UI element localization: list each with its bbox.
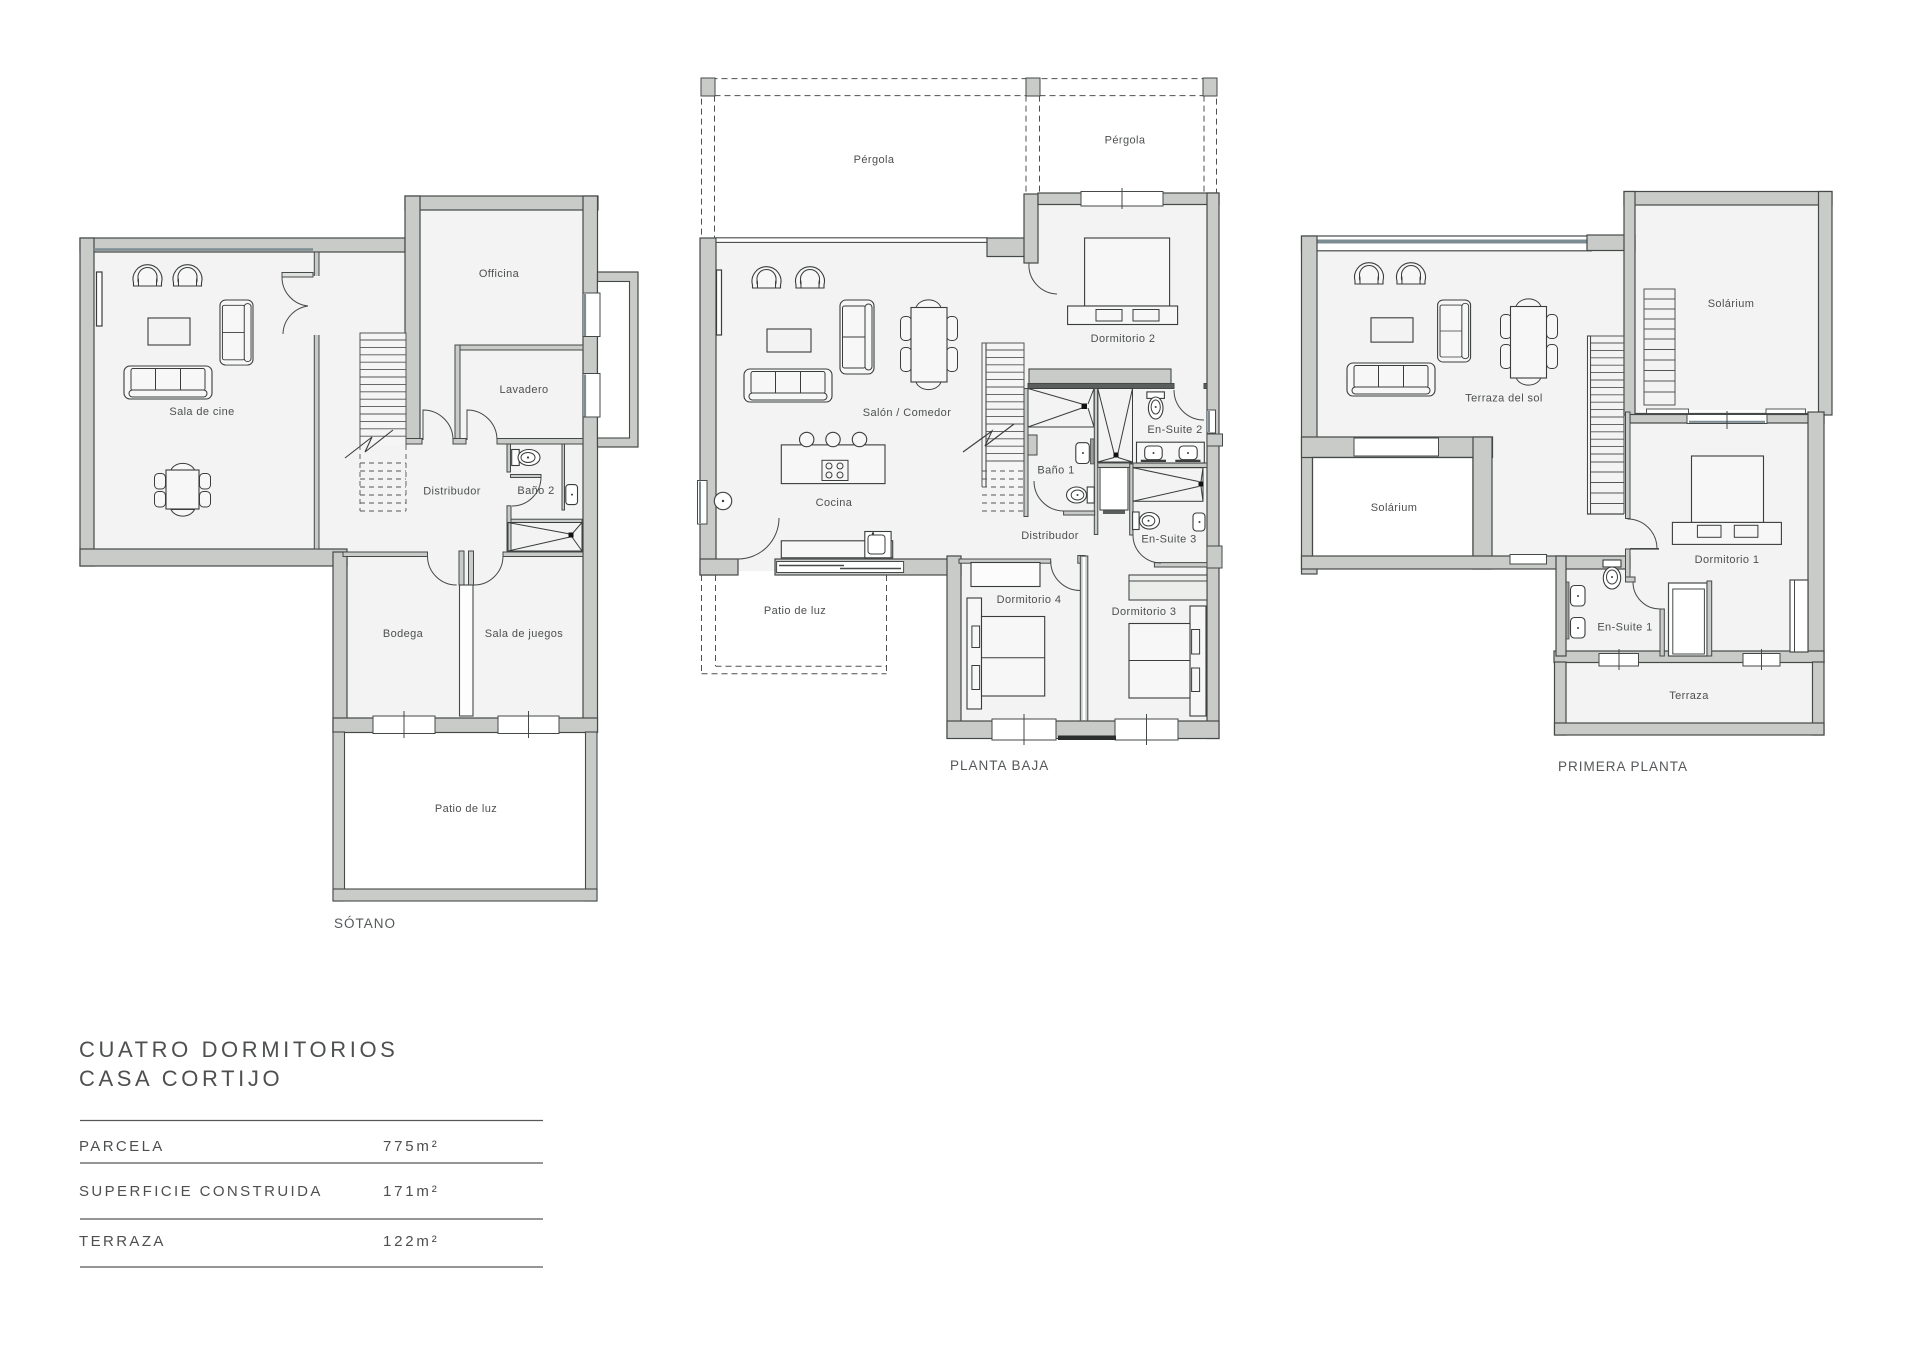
svg-text:PRIMERA PLANTA: PRIMERA PLANTA: [1558, 759, 1688, 774]
svg-text:Pérgola: Pérgola: [1105, 135, 1146, 147]
svg-text:Lavadero: Lavadero: [499, 384, 548, 396]
svg-text:Sala de juegos: Sala de juegos: [485, 628, 563, 640]
svg-text:Terraza del sol: Terraza del sol: [1465, 393, 1543, 405]
svg-text:Distribudor: Distribudor: [423, 486, 481, 498]
svg-text:Officina: Officina: [479, 268, 520, 280]
svg-text:Salón / Comedor: Salón / Comedor: [863, 407, 952, 419]
svg-text:CUATRO DORMITORIOS: CUATRO DORMITORIOS: [79, 1037, 398, 1062]
svg-text:Baño 2: Baño 2: [517, 485, 554, 497]
svg-text:Solárium: Solárium: [1708, 298, 1755, 310]
svg-text:Cocina: Cocina: [816, 497, 853, 509]
svg-text:Bodega: Bodega: [383, 628, 424, 640]
svg-text:Terraza: Terraza: [1669, 690, 1709, 702]
svg-text:PARCELA: PARCELA: [79, 1138, 165, 1155]
svg-text:775m²: 775m²: [383, 1138, 440, 1155]
svg-text:SÓTANO: SÓTANO: [334, 916, 396, 931]
svg-text:Pérgola: Pérgola: [854, 154, 895, 166]
svg-text:Dormitorio 3: Dormitorio 3: [1112, 606, 1177, 618]
svg-text:Patio de luz: Patio de luz: [764, 605, 826, 617]
svg-text:Dormitorio 2: Dormitorio 2: [1091, 333, 1156, 345]
svg-text:Dormitorio 1: Dormitorio 1: [1695, 554, 1760, 566]
svg-text:171m²: 171m²: [383, 1183, 440, 1200]
svg-text:Patio de luz: Patio de luz: [435, 803, 497, 815]
svg-text:Sala de cine: Sala de cine: [169, 406, 234, 418]
svg-text:En-Suite 2: En-Suite 2: [1147, 424, 1202, 436]
svg-text:En-Suite 1: En-Suite 1: [1597, 622, 1652, 634]
svg-text:Dormitorio 4: Dormitorio 4: [997, 594, 1062, 606]
svg-text:TERRAZA: TERRAZA: [79, 1233, 166, 1250]
svg-text:En-Suite 3: En-Suite 3: [1141, 534, 1196, 546]
svg-text:SUPERFICIE CONSTRUIDA: SUPERFICIE CONSTRUIDA: [79, 1183, 323, 1200]
svg-text:CASA CORTIJO: CASA CORTIJO: [79, 1066, 283, 1091]
svg-text:Baño 1: Baño 1: [1037, 465, 1074, 477]
svg-text:122m²: 122m²: [383, 1233, 440, 1250]
svg-text:PLANTA BAJA: PLANTA BAJA: [950, 758, 1049, 773]
svg-text:Distribudor: Distribudor: [1021, 530, 1079, 542]
svg-text:Solárium: Solárium: [1371, 502, 1418, 514]
